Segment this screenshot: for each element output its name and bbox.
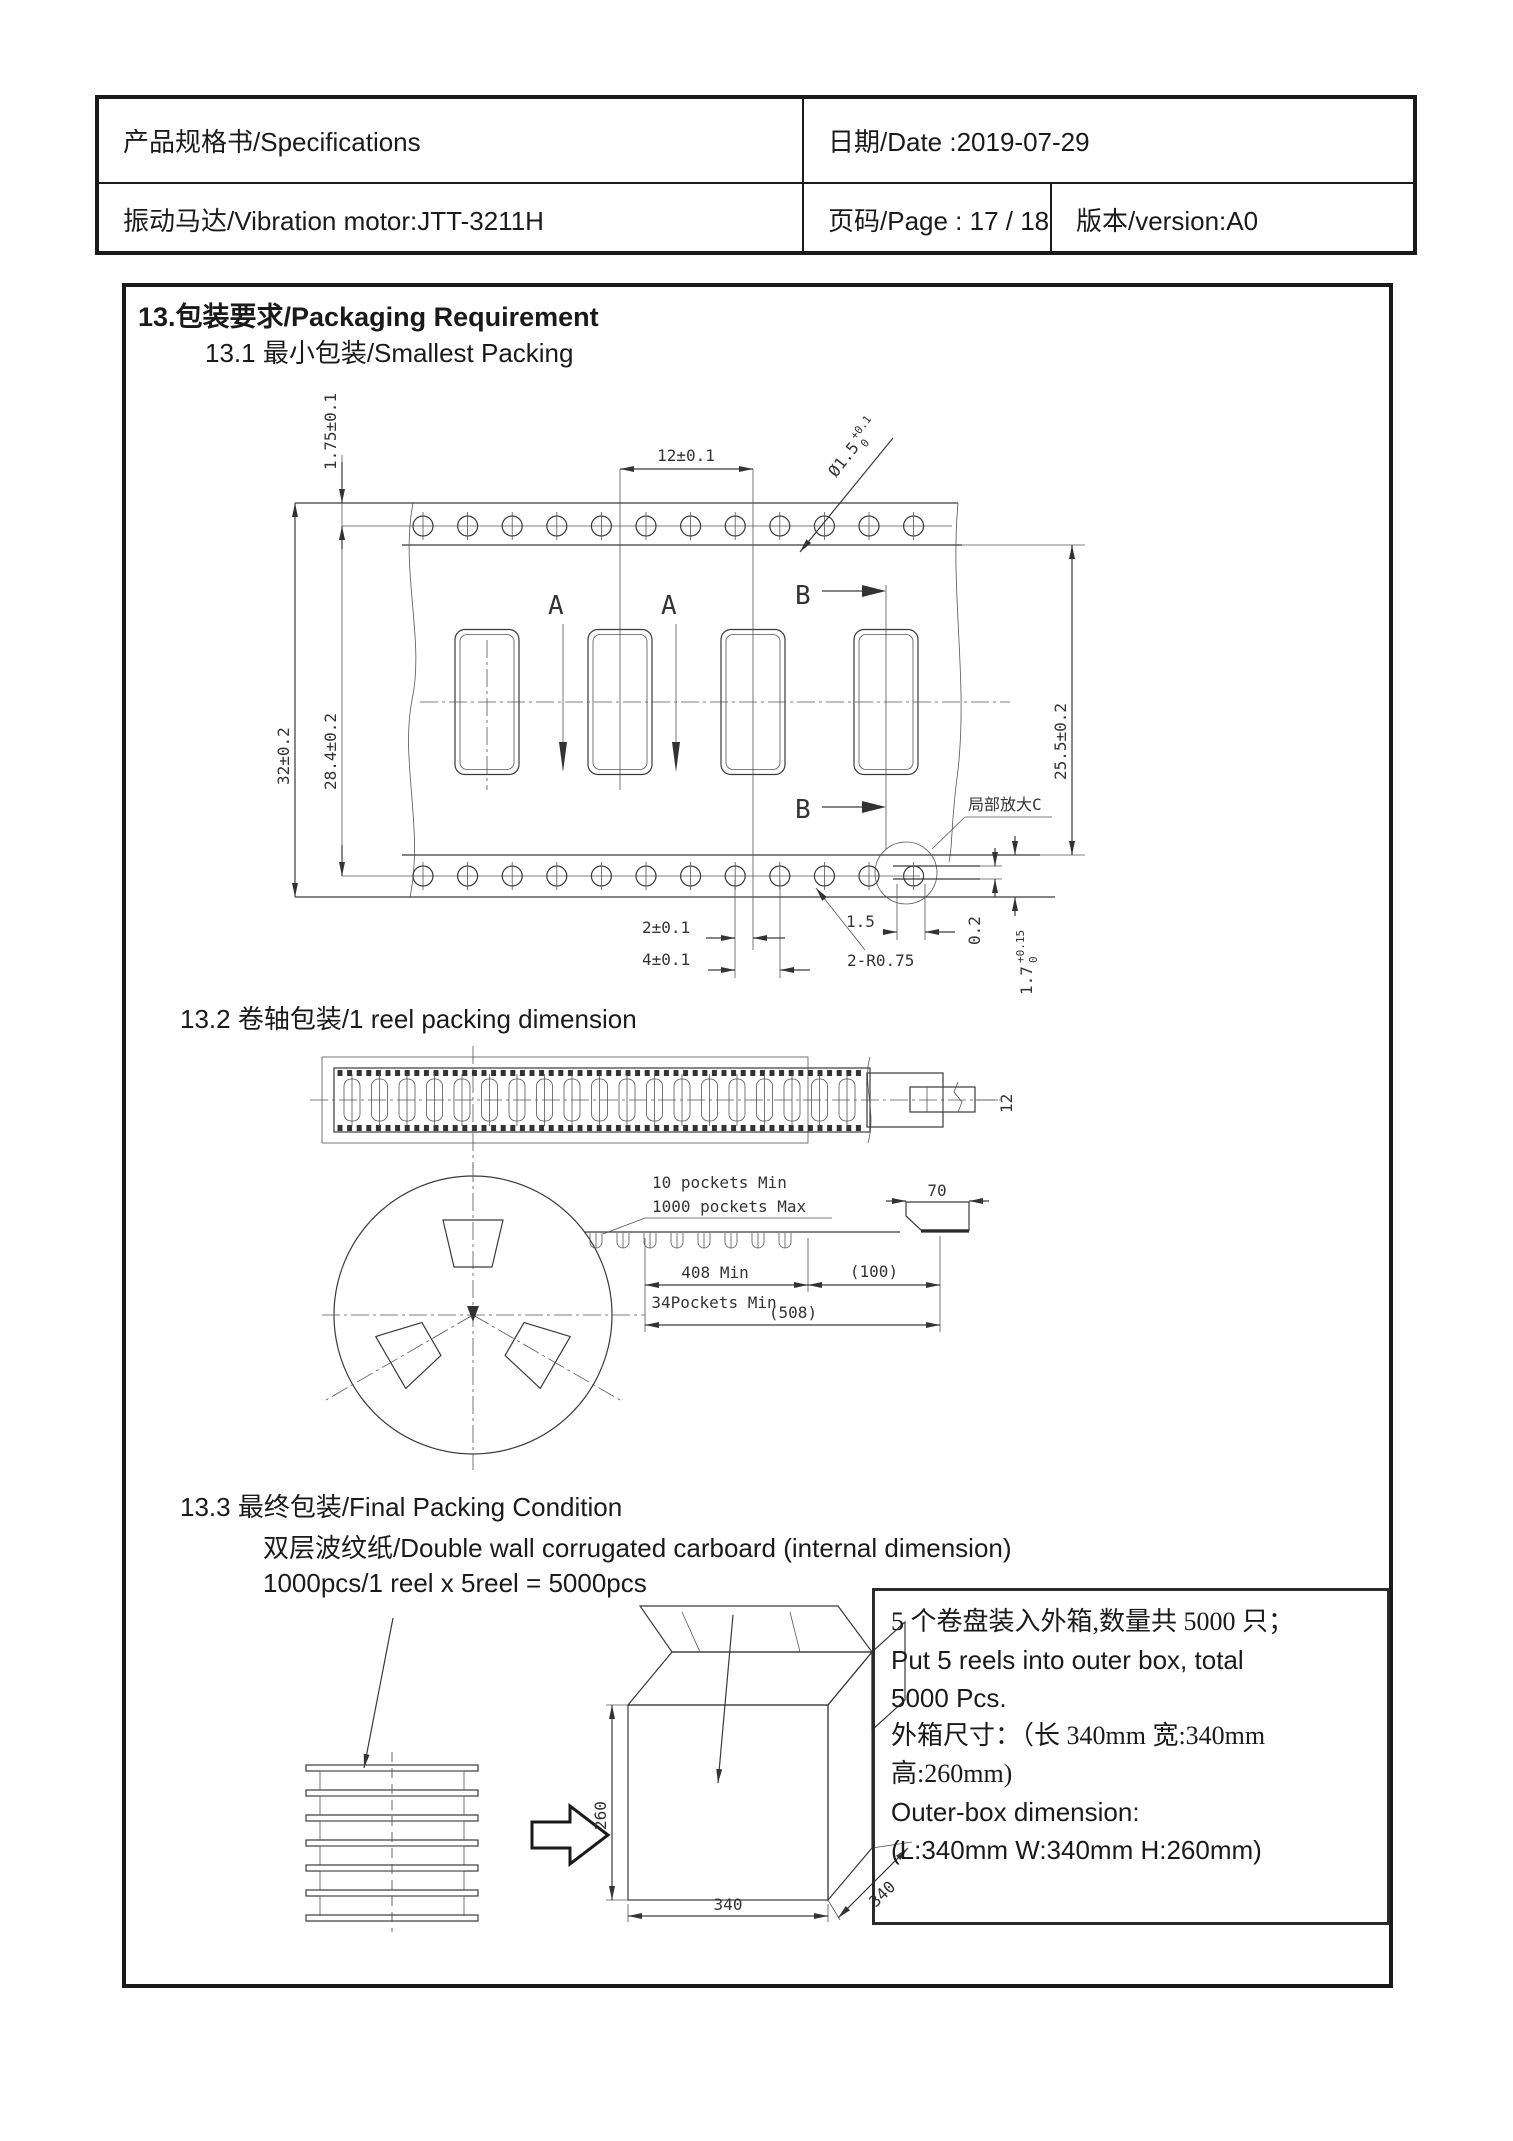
doc-title: 产品规格书/Specifications (99, 99, 802, 182)
header-row-1: 产品规格书/Specifications 日期/Date :2019-07-29 (99, 99, 1413, 184)
dim-100: (100) (850, 1262, 898, 1281)
spec-document-page: 产品规格书/Specifications 日期/Date :2019-07-29… (0, 0, 1513, 2141)
product-name: 振动马达/Vibration motor:JTT-3211H (99, 184, 802, 255)
dim-edge-thickness: 1.7 +0.15 0 (1014, 930, 1040, 995)
dim-leader-70: 70 (927, 1181, 946, 1200)
dim-34-pockets: 34Pockets Min (651, 1293, 776, 1312)
dim-pocket-span: 25.5±0.2 (1051, 703, 1070, 780)
final-packing-drawing: 260 340 340 (306, 1606, 912, 1932)
note-line: 5 个卷盘装入外箱,数量共 5000 只； (891, 1603, 1371, 1641)
doc-version: 版本/version:A0 (1050, 184, 1413, 255)
dim-slot-offset: 1.5 (846, 912, 875, 931)
note-pockets-min: 10 pockets Min (652, 1173, 787, 1192)
svg-text:0: 0 (858, 437, 872, 450)
tape-packing-drawing: 12±0.1 1.75±0.1 28.4±0.2 32±0.2 25.5±0.2 (274, 393, 1085, 995)
note-line: 5000 Pcs. (891, 1679, 1371, 1717)
packaging-section-box: 13.包装要求/Packaging Requirement 13.1 最小包装/… (122, 283, 1393, 1988)
dim-hole-edge-distance: 1.75±0.1 (321, 393, 340, 470)
note-line: 外箱尺寸：（长 340mm 宽:340mm (891, 1717, 1371, 1755)
section-b-label: B (795, 581, 811, 611)
svg-text:0: 0 (1027, 956, 1040, 963)
dim-hole-pitch: 4±0.1 (642, 950, 690, 969)
note-line: (L:340mm W:340mm H:260mm) (891, 1831, 1371, 1869)
note-pockets-max: 1000 pockets Max (652, 1197, 806, 1216)
dim-box-width: 340 (714, 1895, 743, 1914)
note-line: 高:260mm) (891, 1755, 1371, 1793)
header-table: 产品规格书/Specifications 日期/Date :2019-07-29… (95, 95, 1417, 255)
header-row-2: 振动马达/Vibration motor:JTT-3211H 页码/Page :… (99, 184, 1413, 255)
reel-packing-drawing: 12 10 pockets Min 1000 pockets Max (310, 1046, 1016, 1470)
dim-slot-thickness: 0.2 (965, 916, 984, 945)
outer-box-note: 5 个卷盘装入外箱,数量共 5000 只； Put 5 reels into o… (872, 1588, 1390, 1925)
dim-tape-width: 32±0.2 (274, 727, 293, 785)
dim-408-min: 408 Min (681, 1263, 748, 1282)
doc-date: 日期/Date :2019-07-29 (802, 99, 1413, 182)
svg-text:Ø1.5: Ø1.5 (824, 438, 863, 480)
dim-pocket-pitch: 12±0.1 (657, 446, 715, 465)
detail-c-label: 局部放大C (968, 795, 1042, 814)
svg-text:1.7: 1.7 (1017, 966, 1036, 995)
dim-sprocket-hole: Ø1.5 +0.1 0 (822, 413, 885, 483)
note-line: Put 5 reels into outer box, total (891, 1641, 1371, 1679)
leader-pockets (590, 1233, 791, 1248)
dim-tape-inner-width: 28.4±0.2 (321, 713, 340, 790)
dim-box-height: 260 (591, 1801, 610, 1830)
svg-text:+0.15: +0.15 (1014, 930, 1027, 963)
section-b-label: B (795, 795, 811, 825)
dim-tape-width-reel: 12 (997, 1094, 1016, 1113)
page-number: 页码/Page : 17 / 18 (802, 184, 1050, 255)
dim-508: (508) (769, 1303, 817, 1322)
dim-corner-radius: 2-R0.75 (847, 951, 914, 970)
section-a-label: A (548, 591, 564, 621)
dim-hole-to-pocket: 2±0.1 (642, 918, 690, 937)
section-a-label: A (661, 591, 677, 621)
note-line: Outer-box dimension: (891, 1793, 1371, 1831)
